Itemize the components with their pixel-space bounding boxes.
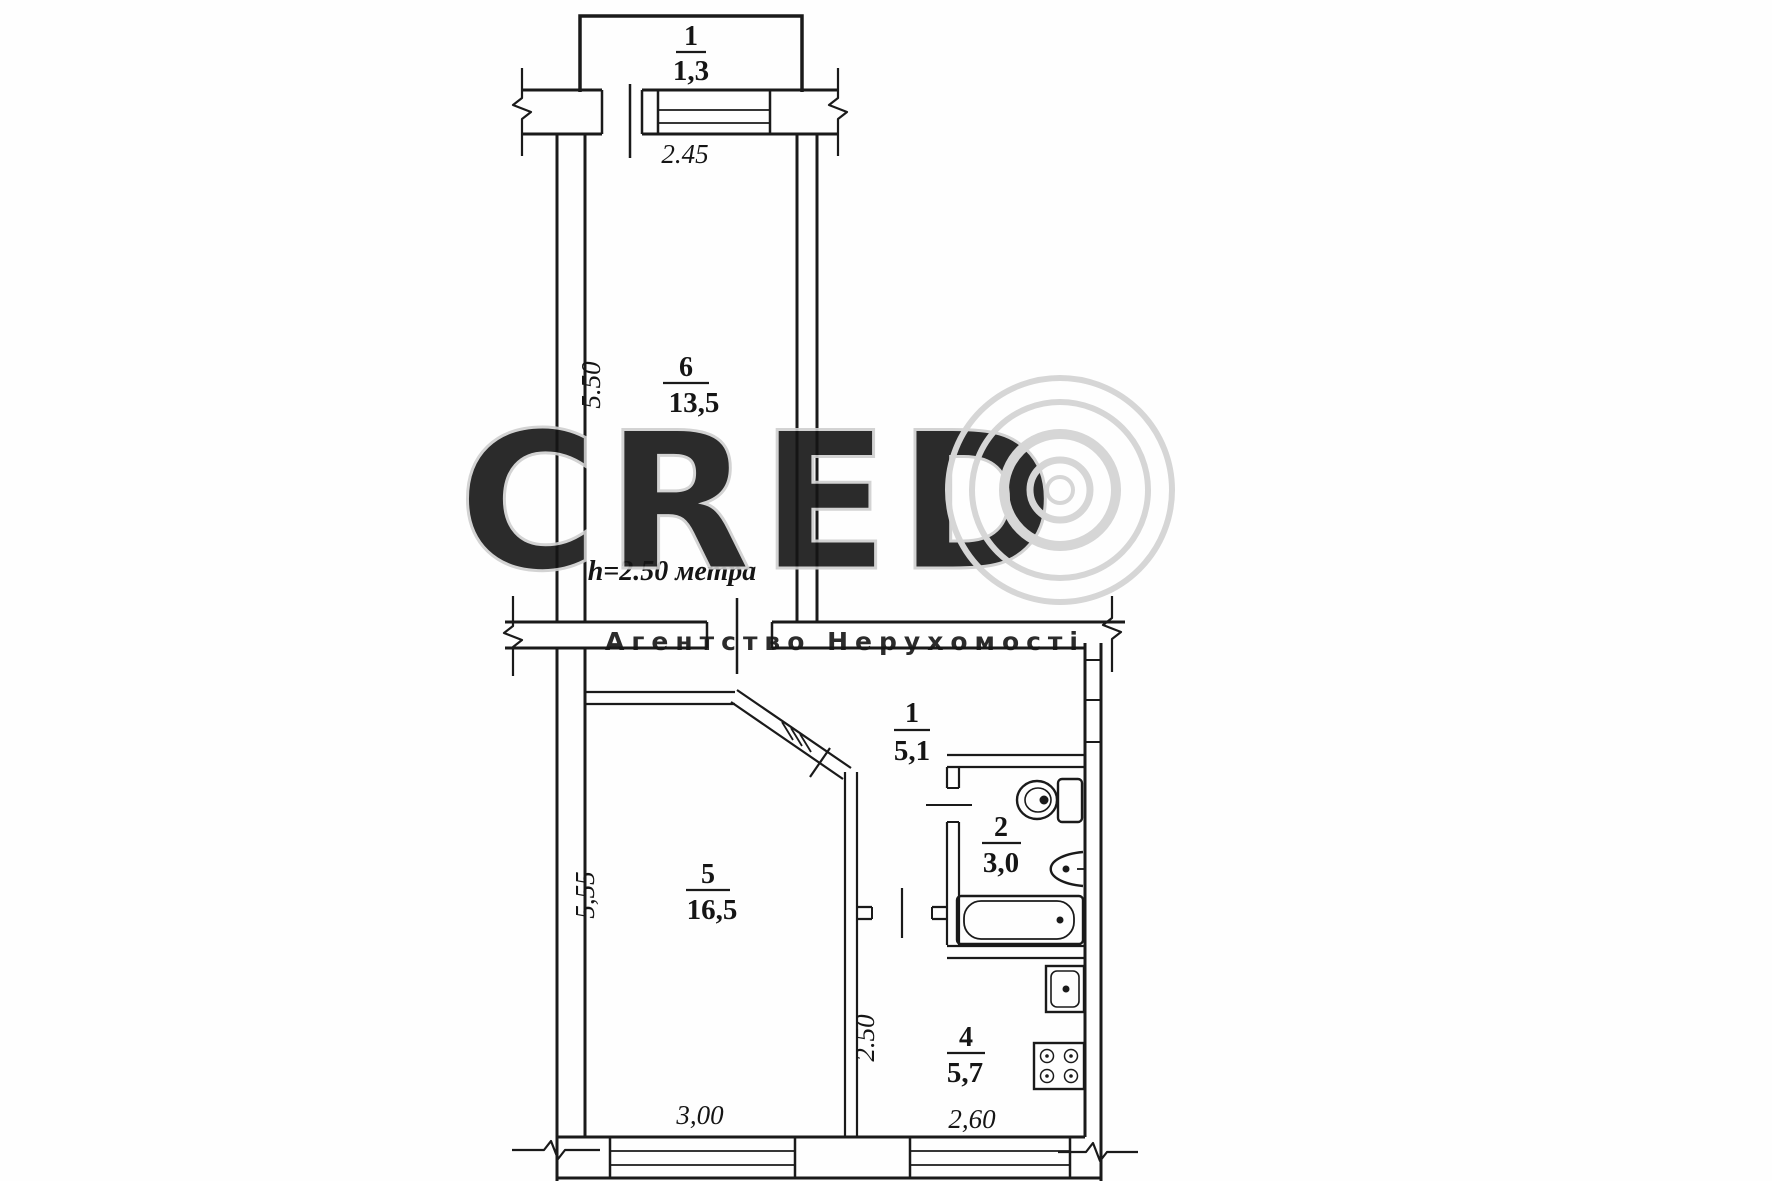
balcony-area-label: 1,3 — [673, 55, 709, 87]
right-exterior-wall — [1058, 643, 1138, 1181]
kitchen-width-dim: 2,60 — [948, 1104, 996, 1134]
hall-number-label: 1 — [905, 698, 919, 729]
watermark-subtitle: Агентство Нерухомості — [605, 627, 1085, 656]
hall-area-label: 5,1 — [894, 735, 930, 767]
toilet-icon — [1017, 779, 1082, 822]
washbasin-icon — [1051, 852, 1085, 886]
vent-shaft-ticks — [1085, 660, 1101, 742]
bathroom-number-label: 2 — [994, 812, 1008, 843]
kitchen-window — [910, 1137, 1070, 1178]
bedroom-depth-dim: 5,55 — [570, 871, 600, 918]
kitchen-area-label: 5,7 — [947, 1057, 983, 1089]
room6-window — [658, 90, 770, 134]
balcony-width-dim: 2.45 — [661, 139, 708, 169]
living-number-label: 6 — [679, 352, 693, 383]
bedroom-window — [610, 1137, 795, 1178]
bedroom-area-label: 16,5 — [687, 894, 738, 926]
balcony-number-label: 1 — [684, 21, 698, 52]
break-icon — [513, 68, 531, 156]
bathtub-icon — [957, 896, 1083, 944]
stove-icon — [1034, 1043, 1084, 1089]
bedroom-width-dim: 3,00 — [675, 1100, 724, 1130]
hall-kitchen-wall — [857, 888, 947, 938]
watermark: CRED Агентство Нерухомості — [458, 378, 1172, 656]
floorplan-photo: 1 1,3 2.45 6 13,5 5.50 h=2.50 метра 1 5,… — [0, 0, 1772, 1181]
break-icon — [1103, 596, 1121, 672]
bedroom-number-label: 5 — [701, 859, 715, 890]
balcony-door — [602, 84, 642, 158]
bathroom-area-label: 3,0 — [983, 847, 1019, 879]
kitchen-number-label: 4 — [959, 1022, 973, 1053]
break-icon — [829, 68, 847, 156]
kitchen-depth-dim: 2.50 — [850, 1014, 880, 1062]
kitchen-sink-icon — [1046, 966, 1084, 1012]
bottom-exterior-wall — [557, 1137, 1101, 1178]
